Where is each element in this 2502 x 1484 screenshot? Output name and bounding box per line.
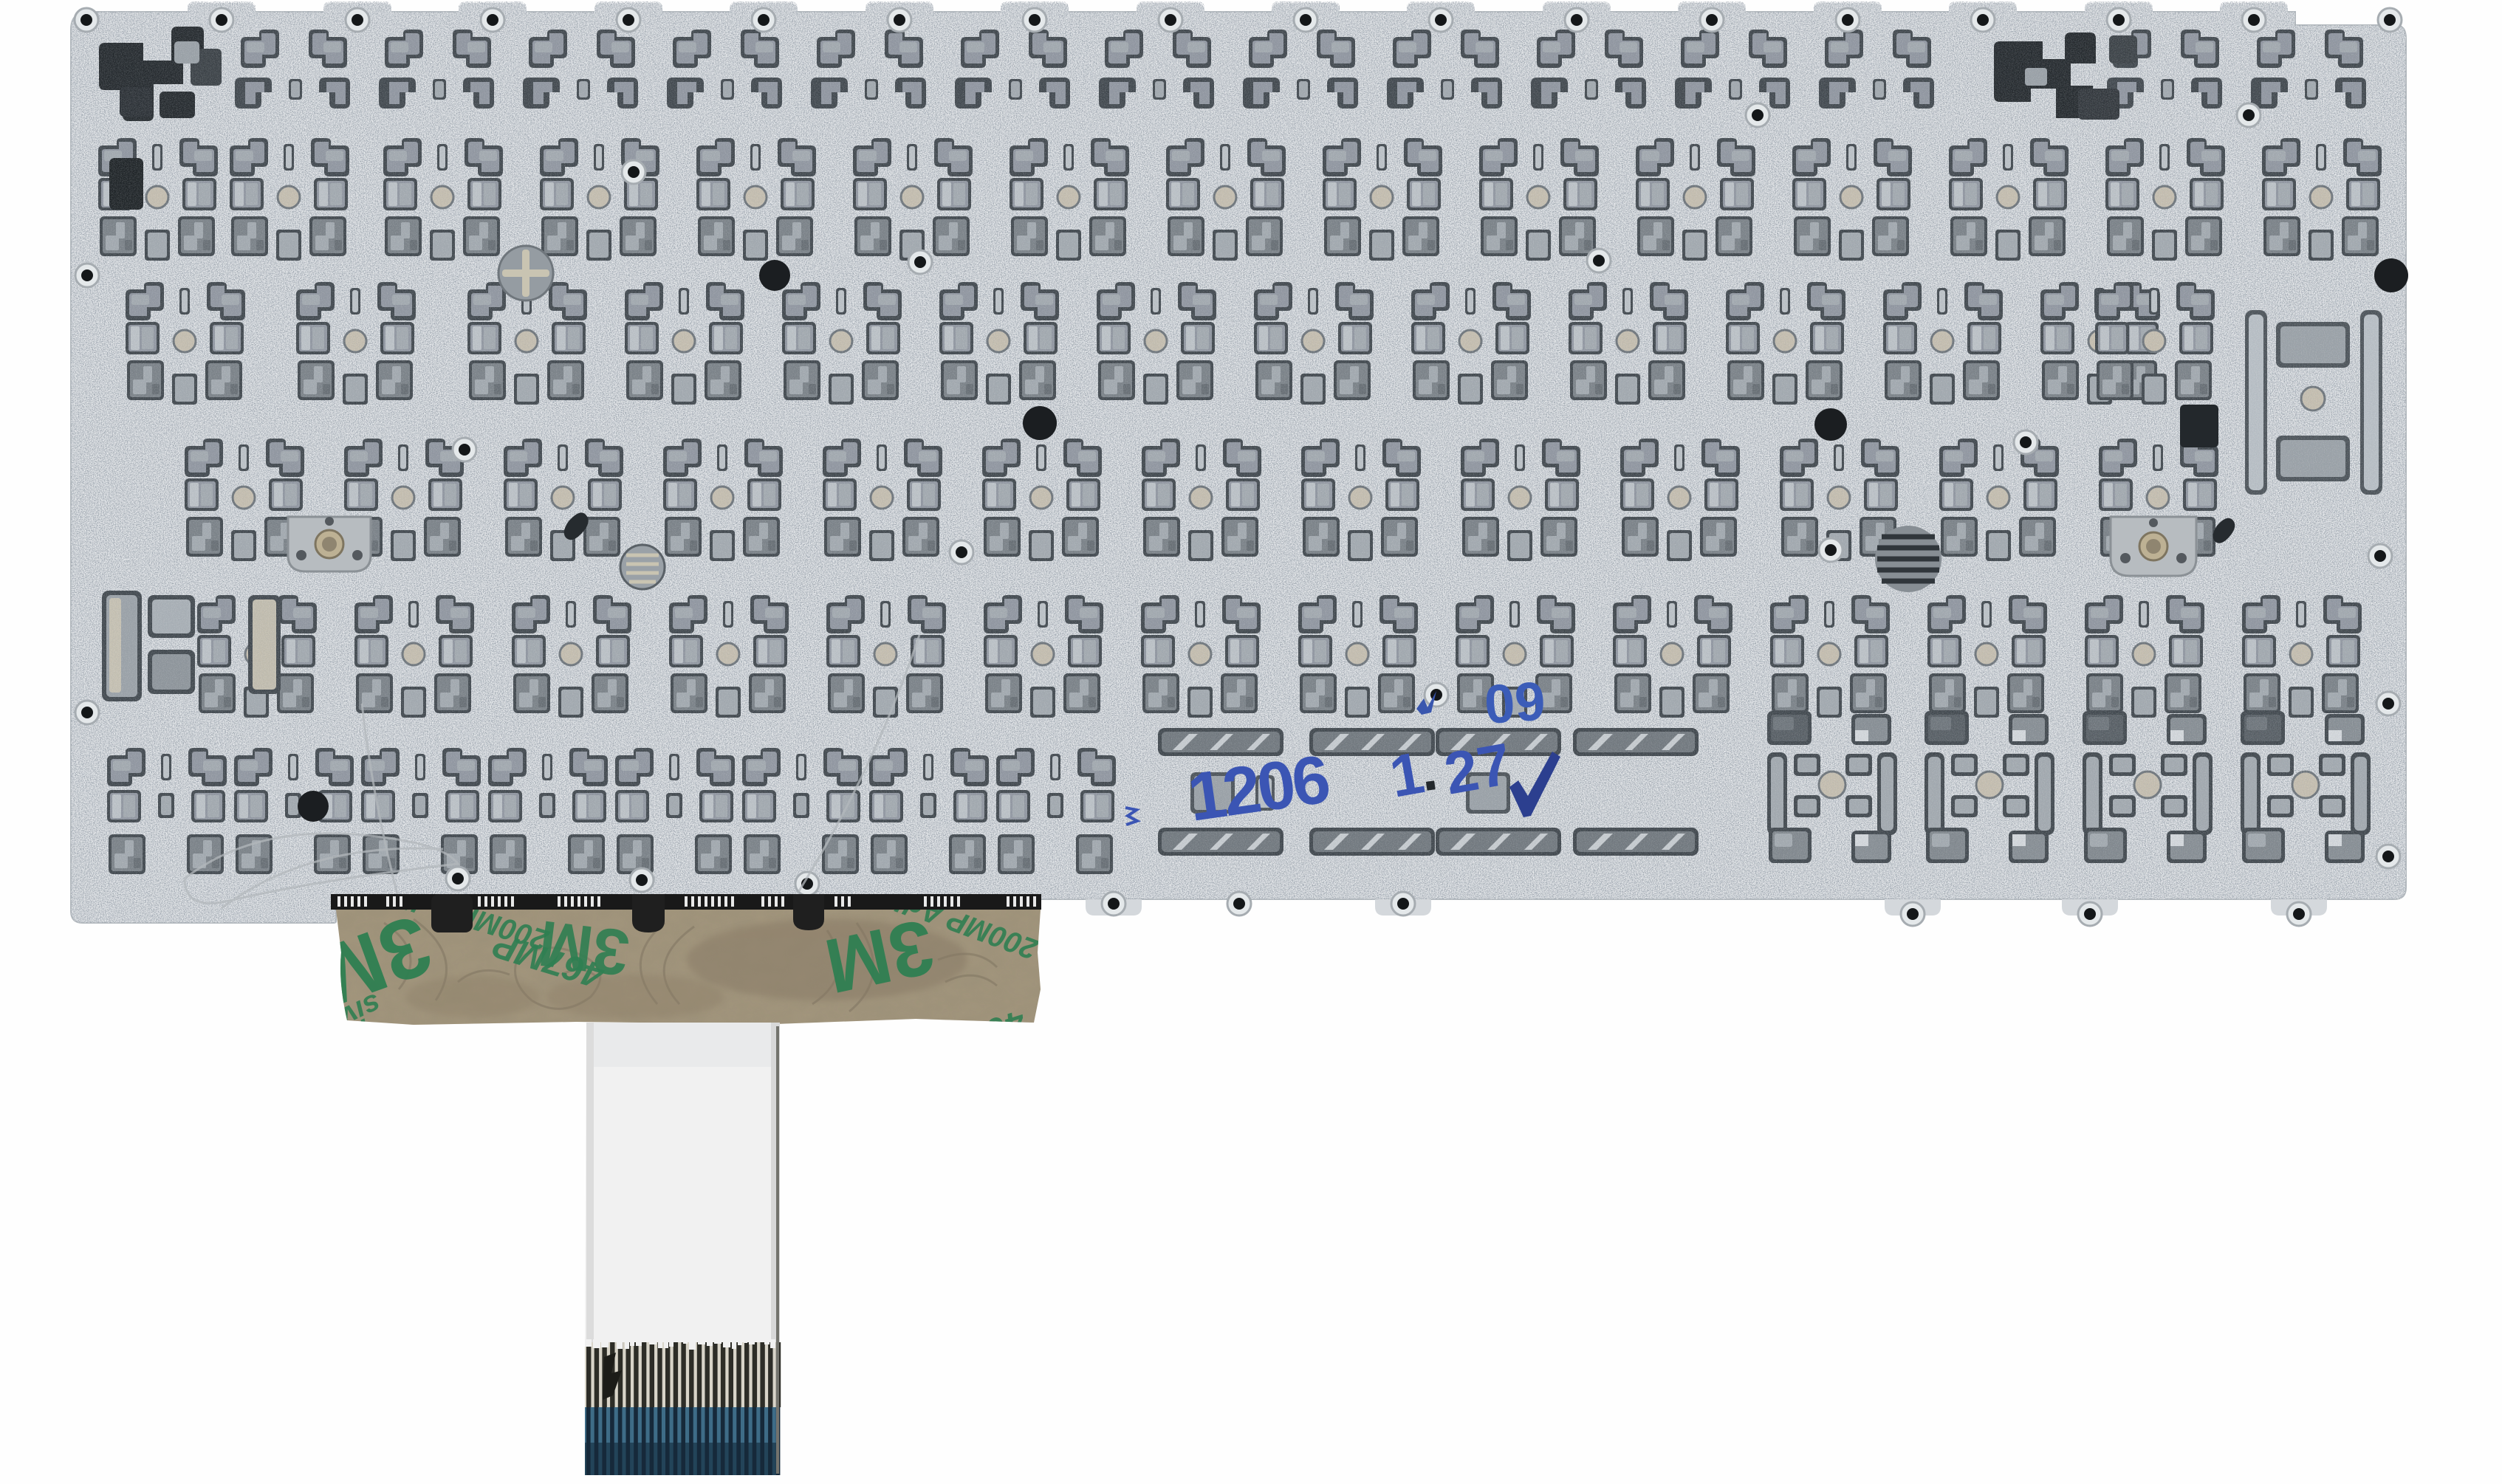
svg-text:09: 09 [1482, 670, 1547, 735]
svg-text:27: 27 [1439, 731, 1515, 807]
